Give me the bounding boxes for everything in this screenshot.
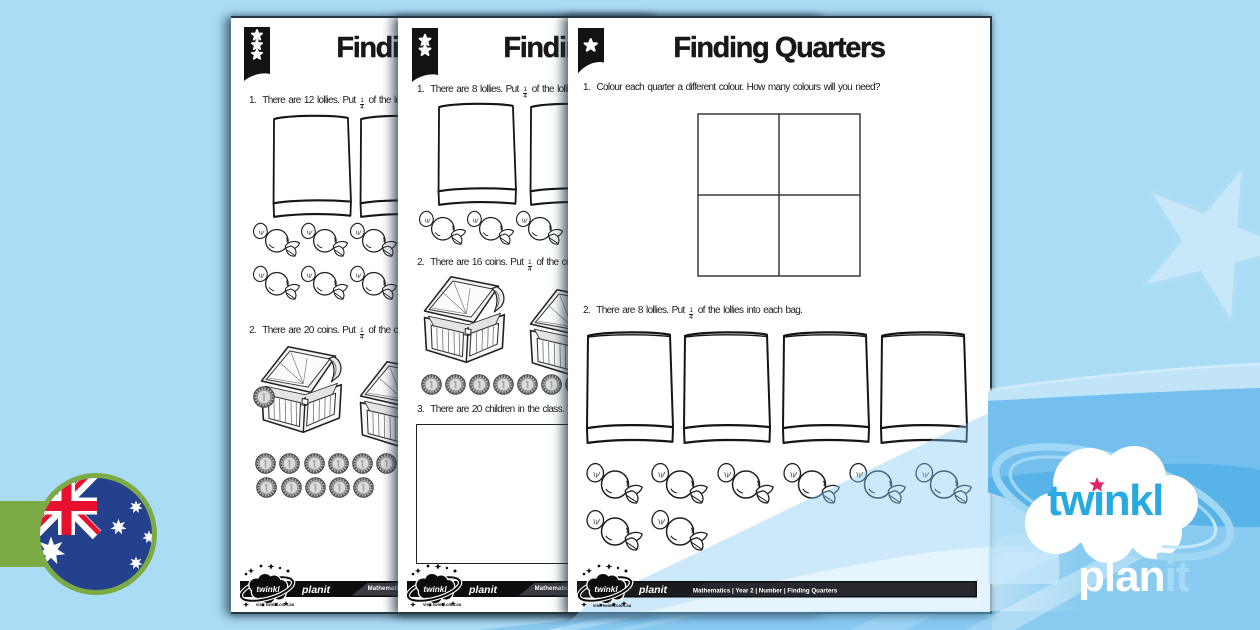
svg-text:twinkl: twinkl <box>1047 476 1163 525</box>
svg-text:planit: planit <box>1078 552 1191 601</box>
svg-text:planit: planit <box>638 584 668 596</box>
svg-text:visit twinkl.com.au: visit twinkl.com.au <box>593 603 632 608</box>
svg-text:Mathematics | Year 2 | Number: Mathematics | Year 2 | Number | Finding … <box>693 588 838 595</box>
